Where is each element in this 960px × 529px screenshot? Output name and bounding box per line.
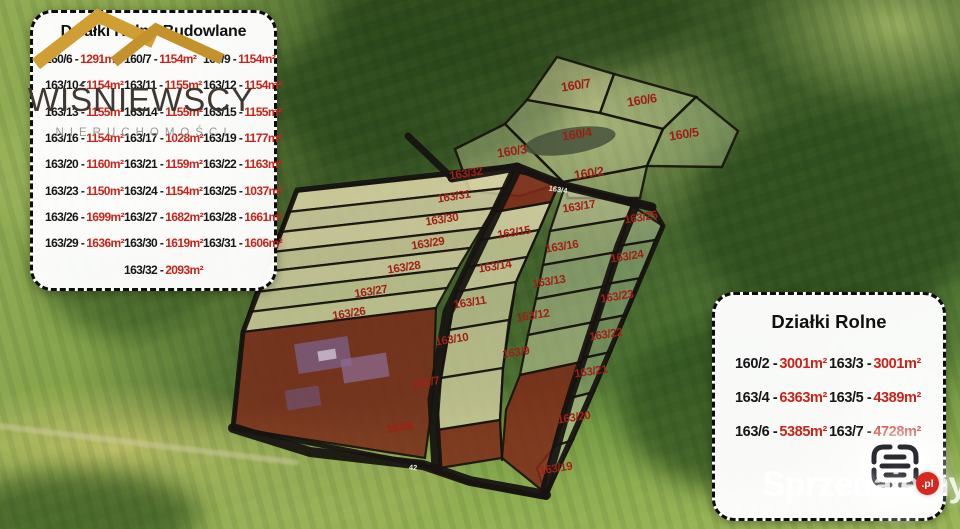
- plot-entry: 163/6 - 5385m²: [735, 415, 829, 449]
- plot-entry: 163/25 - 1037m²: [203, 177, 282, 203]
- plot-entry: 163/21 - 1159m²: [124, 151, 203, 177]
- plot-area: 1037m²: [244, 184, 282, 198]
- plot-number: 163/28 -: [203, 210, 242, 224]
- plot-entry: 163/20 - 1160m²: [45, 151, 124, 177]
- plot-number: 163/32 -: [124, 263, 163, 277]
- plot-area: 1159m²: [165, 157, 202, 171]
- plot-area: 1150m²: [86, 184, 123, 198]
- road-stub: [408, 136, 452, 178]
- watermark-pl-badge: .pl: [916, 472, 939, 495]
- plot-number: 163/29 -: [45, 236, 84, 250]
- plot-area: 3001m²: [779, 356, 827, 372]
- plot-area: 2093m²: [165, 263, 203, 277]
- plot-number: 163/31 -: [203, 236, 242, 250]
- agency-name: WIŚNIEWSCY: [28, 80, 254, 118]
- plot-area: 1163m²: [244, 157, 281, 171]
- plot-number: 163/24 -: [124, 184, 163, 198]
- agency-subtitle: NIERUCHOMOŚCI: [55, 126, 232, 139]
- plot-number: 163/4 -: [735, 390, 777, 406]
- plot-number: 163/26 -: [45, 210, 84, 224]
- plot-entry: 163/4 - 6363m²: [735, 381, 829, 415]
- listing-image: 160/7160/6160/4160/5160/3160/2163/32163/…: [0, 0, 960, 529]
- plot-area: 3001m²: [873, 356, 921, 372]
- plot-area: 4389m²: [873, 390, 921, 406]
- plot-number: 163/20 -: [45, 157, 84, 171]
- plot-number: 163/27 -: [124, 210, 163, 224]
- agency-logo: WIŚNIEWSCY NIERUCHOMOŚCI: [26, 6, 261, 146]
- plot-entry: 160/2 - 3001m²: [735, 347, 829, 381]
- plot-entry: 163/24 - 1154m²: [124, 177, 203, 203]
- plot-entry: 163/5 - 4389m²: [829, 381, 923, 415]
- plot-area: 6363m²: [779, 390, 827, 406]
- plot-area: 1636m²: [86, 236, 124, 250]
- plot-area: 1606m²: [244, 236, 282, 250]
- plot-entry: 163/26 - 1699m²: [45, 204, 124, 230]
- plot-area: 1699m²: [86, 210, 124, 224]
- plot-entry: 163/28 - 1661m²: [203, 204, 282, 230]
- plot-number: 163/21 -: [124, 157, 163, 171]
- plot-number: 163/23 -: [45, 184, 84, 198]
- plot-area: 1682m²: [165, 210, 203, 224]
- plot-number: 163/6 -: [735, 424, 777, 440]
- plot-number: 163/30 -: [124, 236, 163, 250]
- plot-area: 1619m²: [165, 236, 203, 250]
- plot-entry: 163/32 - 2093m²: [45, 256, 282, 282]
- plot-entry: 163/31 - 1606m²: [203, 230, 282, 256]
- plot-area: 1661m²: [244, 210, 282, 224]
- plot-entry: 163/22 - 1163m²: [203, 151, 282, 177]
- plot-area: 1154m²: [165, 184, 202, 198]
- plot-number: 163/3 -: [829, 356, 871, 372]
- plot-entry: 163/30 - 1619m²: [124, 230, 203, 256]
- plot-area: 5385m²: [779, 424, 827, 440]
- road-label: 42: [409, 463, 418, 473]
- plot-number: 163/5 -: [829, 390, 871, 406]
- plot-entry: 163/3 - 3001m²: [829, 347, 923, 381]
- plot-entry: 163/29 - 1636m²: [45, 230, 124, 256]
- plot-entry: 163/23 - 1150m²: [45, 177, 124, 203]
- panel-agricultural-title: Działki Rolne: [729, 311, 929, 333]
- plot-number: 160/2 -: [735, 356, 777, 372]
- plot-entry: 163/27 - 1682m²: [124, 204, 203, 230]
- plot-area: 1160m²: [86, 157, 123, 171]
- plot-number: 163/22 -: [203, 157, 242, 171]
- plot-number: 163/25 -: [203, 184, 242, 198]
